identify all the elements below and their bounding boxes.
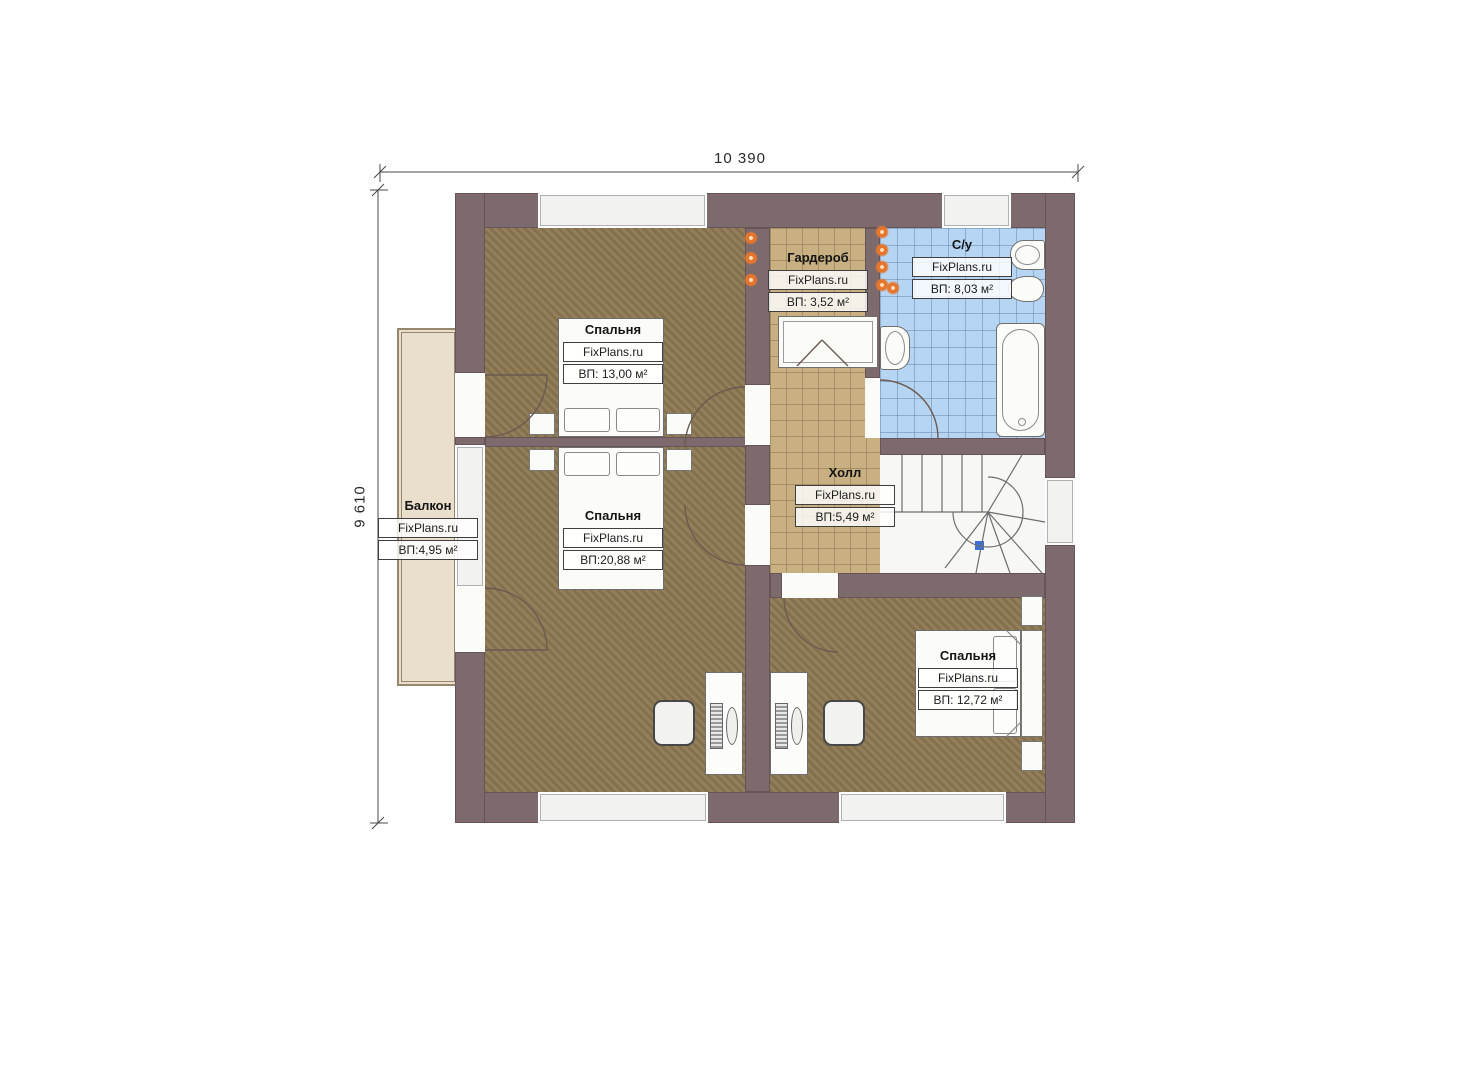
room-name: С/у bbox=[952, 237, 972, 252]
nightstand bbox=[529, 449, 555, 471]
desk-right bbox=[770, 672, 808, 775]
closet-unit bbox=[778, 316, 878, 368]
room-brand: FixPlans.ru bbox=[795, 485, 895, 505]
wall-hall-bottom-right bbox=[838, 573, 1045, 598]
chair-left bbox=[653, 700, 695, 746]
room-label-bedroom-bottom: Спальня FixPlans.ru ВП: 12,72 м² bbox=[908, 648, 1028, 710]
room-brand: FixPlans.ru bbox=[378, 518, 478, 538]
wall-left-stub bbox=[455, 437, 485, 445]
room-name: Спальня bbox=[585, 508, 641, 523]
wall-hall-bottom-left bbox=[770, 573, 782, 598]
window-right-stairs bbox=[1045, 478, 1075, 545]
door-opening-balcony-upper bbox=[455, 373, 485, 437]
window-bottom-right bbox=[839, 792, 1006, 823]
chair-right bbox=[823, 700, 865, 746]
nightstand bbox=[666, 449, 692, 471]
nightstand bbox=[529, 413, 555, 435]
room-area: ВП: 13,00 м² bbox=[563, 364, 663, 384]
pillow bbox=[616, 452, 660, 476]
pillow bbox=[564, 408, 610, 432]
wall-light-icon bbox=[875, 225, 889, 239]
door-opening-bedroom-top bbox=[745, 385, 770, 445]
dimension-height-label: 9 610 bbox=[352, 467, 369, 547]
wall-bathroom-stairs bbox=[880, 438, 1045, 455]
wall-left-lower bbox=[455, 652, 485, 823]
room-label-bedroom-middle: Спальня FixPlans.ru ВП:20,88 м² bbox=[553, 508, 673, 570]
room-name: Холл bbox=[829, 465, 862, 480]
room-area: ВП: 8,03 м² bbox=[912, 279, 1012, 299]
room-brand: FixPlans.ru bbox=[563, 528, 663, 548]
window-bottom-left bbox=[538, 792, 708, 823]
room-area: ВП: 3,52 м² bbox=[768, 292, 868, 312]
room-area: ВП: 12,72 м² bbox=[918, 690, 1018, 710]
room-brand: FixPlans.ru bbox=[912, 257, 1012, 277]
wall-right-upper bbox=[1045, 193, 1075, 478]
room-brand: FixPlans.ru bbox=[768, 270, 868, 290]
bathtub bbox=[996, 323, 1045, 437]
door-opening-bedroom-bottom bbox=[782, 573, 838, 598]
nightstand bbox=[1021, 741, 1043, 771]
door-opening-balcony-lower bbox=[455, 588, 485, 652]
door-opening-bedroom-middle bbox=[745, 505, 770, 565]
room-area: ВП:5,49 м² bbox=[795, 507, 895, 527]
room-name: Балкон bbox=[405, 498, 452, 513]
nightstand bbox=[666, 413, 692, 435]
wall-center-mid bbox=[745, 445, 770, 505]
door-opening-bathroom bbox=[865, 378, 880, 438]
room-label-hall: Холл FixPlans.ru ВП:5,49 м² bbox=[785, 465, 905, 527]
wall-left-upper bbox=[455, 193, 485, 373]
wall-light-icon bbox=[886, 281, 900, 295]
room-brand: FixPlans.ru bbox=[563, 342, 663, 362]
room-name: Гардероб bbox=[787, 250, 848, 265]
room-label-bedroom-top: Спальня FixPlans.ru ВП: 13,00 м² bbox=[553, 322, 673, 384]
room-label-wardrobe: Гардероб FixPlans.ru ВП: 3,52 м² bbox=[758, 250, 878, 312]
pillow bbox=[564, 452, 610, 476]
wall-light-icon bbox=[744, 251, 758, 265]
nightstand bbox=[1021, 596, 1043, 626]
room-name: Спальня bbox=[940, 648, 996, 663]
room-name: Спальня bbox=[585, 322, 641, 337]
wall-center-lower bbox=[745, 565, 770, 792]
room-area: ВП:20,88 м² bbox=[563, 550, 663, 570]
dimension-width-label: 10 390 bbox=[650, 150, 830, 167]
sink bbox=[880, 326, 910, 370]
desk-left bbox=[705, 672, 743, 775]
floor-plan-canvas: Спальня FixPlans.ru ВП: 13,00 м² Гардеро… bbox=[0, 0, 1474, 1080]
wall-light-icon bbox=[744, 273, 758, 287]
stair-marker bbox=[975, 541, 984, 550]
pillow bbox=[616, 408, 660, 432]
room-label-bathroom: С/у FixPlans.ru ВП: 8,03 м² bbox=[902, 237, 1022, 299]
wall-light-icon bbox=[744, 231, 758, 245]
room-label-balcony: Балкон FixPlans.ru ВП:4,95 м² bbox=[368, 498, 488, 560]
room-area: ВП:4,95 м² bbox=[378, 540, 478, 560]
wall-right-lower bbox=[1045, 545, 1075, 823]
window-top-right bbox=[942, 193, 1011, 228]
wall-bedroom-divider bbox=[485, 437, 747, 447]
room-brand: FixPlans.ru bbox=[918, 668, 1018, 688]
window-top-left bbox=[538, 193, 707, 228]
